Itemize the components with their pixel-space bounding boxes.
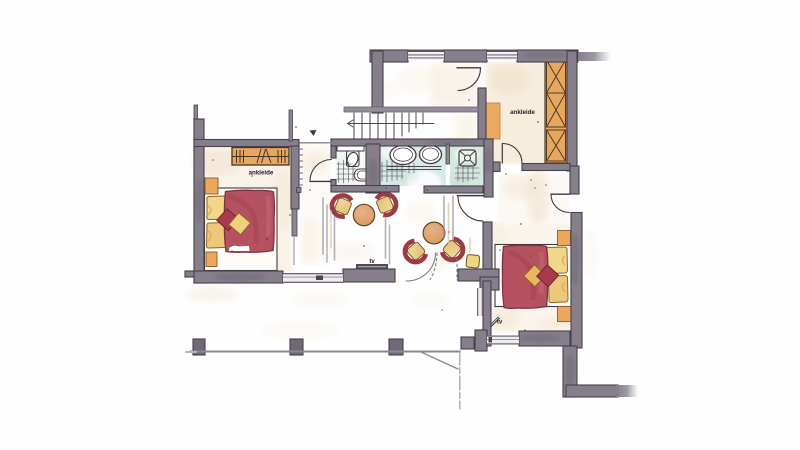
svg-text:ankleide: ankleide: [249, 170, 274, 177]
svg-text:ankleide: ankleide: [510, 109, 535, 116]
svg-text:tv: tv: [369, 259, 375, 265]
svg-text:tv: tv: [497, 320, 503, 326]
